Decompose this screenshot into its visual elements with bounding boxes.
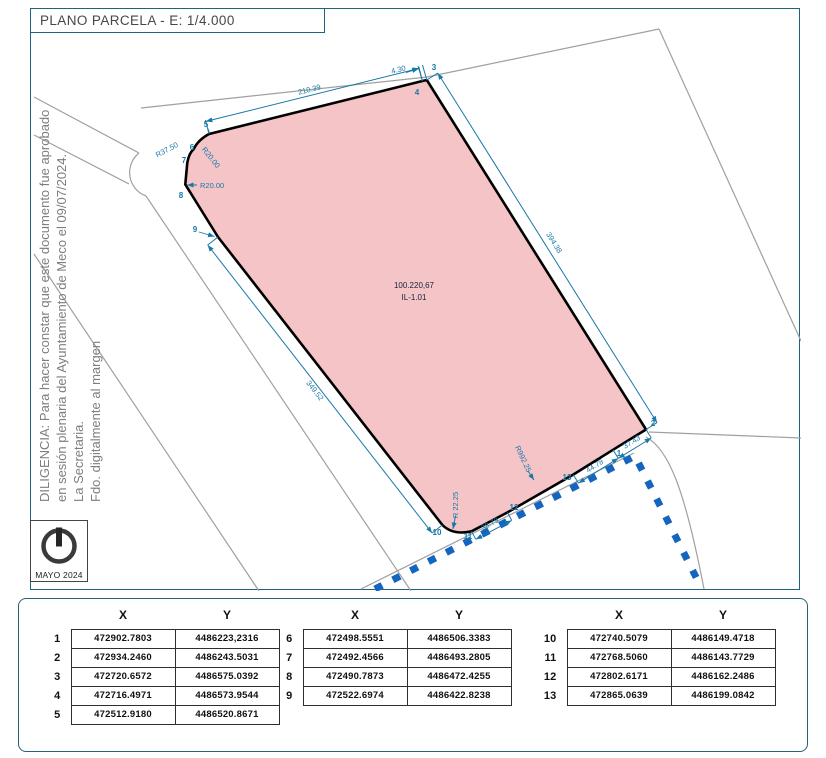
coord-x: 472720.6572 <box>71 667 175 686</box>
coord-x: 472498.5551 <box>303 629 407 648</box>
point-number: 2 <box>41 648 71 667</box>
point-number: 7 <box>273 648 303 667</box>
point-number: 6 <box>273 629 303 648</box>
dim-top-corner: 4.30 <box>390 63 406 75</box>
coord-y: 4486149.4718 <box>671 629 775 648</box>
radius-corner-label: R 22.25 <box>451 492 460 518</box>
vertex-9: 9 <box>193 225 198 234</box>
coord-row: 9472522.69744486422.8238 <box>273 686 511 705</box>
coord-y: 4486162.2486 <box>671 667 775 686</box>
area-value: 100.220,67 <box>394 281 435 290</box>
coordinates-table-3: X Y 10472740.50794486149.4718 11472768.5… <box>537 607 776 706</box>
coord-y: 4486493.2805 <box>407 648 511 667</box>
culdesac-arc <box>130 153 146 196</box>
coord-y: 4486520.8671 <box>175 705 279 724</box>
coord-y: 4486422.8238 <box>407 686 511 705</box>
vertex-7: 7 <box>182 156 187 165</box>
coord-row: 1472902.78034486223,2316 <box>41 629 279 648</box>
dim-top: 210.39 <box>297 82 321 96</box>
plan-sheet: 210.39 4.30 394.38 349.52 44.78 37.43 38… <box>0 0 826 758</box>
col-header-x: X <box>303 607 407 629</box>
col-header-y: Y <box>671 607 775 629</box>
coord-x: 472934.2460 <box>71 648 175 667</box>
coord-y: 4486472.4255 <box>407 667 511 686</box>
coord-x: 472768.5060 <box>567 648 671 667</box>
vertex-3: 3 <box>432 63 437 72</box>
coord-y: 4486243.5031 <box>175 648 279 667</box>
dim-left: 349.52 <box>304 379 325 403</box>
diligencia-line-1: DILIGENCIA: Para hacer constar que este … <box>36 110 53 502</box>
coord-y: 4486143.7729 <box>671 648 775 667</box>
title-box: PLANO PARCELA - E: 1/4.000 <box>30 8 325 33</box>
point-number: 11 <box>537 648 567 667</box>
point-number: 1 <box>41 629 71 648</box>
radius-37-label: R37.50 <box>154 140 180 159</box>
vertex-5: 5 <box>204 120 209 129</box>
plan-date: MAYO 2024 <box>31 570 87 580</box>
coord-y: 4486199.0842 <box>671 686 775 705</box>
coord-row: 6472498.55514486506.3383 <box>273 629 511 648</box>
parcel-polygon <box>185 80 646 533</box>
point-number: 5 <box>41 705 71 724</box>
coordinates-table-2: X Y 6472498.55514486506.3383 7472492.456… <box>273 607 512 706</box>
dim-right: 394.38 <box>544 231 564 255</box>
coord-y: 4486575.0392 <box>175 667 279 686</box>
point-number: 12 <box>537 667 567 686</box>
coord-y: 4486506.3383 <box>407 629 511 648</box>
diligencia-line-2: en sesión plenaria del Ayuntamiento de M… <box>53 110 70 502</box>
coordinates-table-1: X Y 1472902.78034486223,2316 2472934.246… <box>41 607 280 725</box>
coord-y: 4486573.9544 <box>175 686 279 705</box>
table-header: X Y <box>273 607 511 629</box>
table-header: X Y <box>537 607 775 629</box>
col-header-x: X <box>567 607 671 629</box>
radius-20b-label: R20.00 <box>200 181 224 190</box>
coord-row: 7472492.45664486493.2805 <box>273 648 511 667</box>
coord-row: 8472490.78734486472.4255 <box>273 667 511 686</box>
coord-x: 472802.6171 <box>567 667 671 686</box>
coord-row: 5472512.91804486520.8671 <box>41 705 279 724</box>
vertex-11: 11 <box>464 532 473 541</box>
point-number: 13 <box>537 686 567 705</box>
vertex-1: 1 <box>617 449 622 458</box>
vertex-13: 13 <box>563 473 572 482</box>
diligencia-note: DILIGENCIA: Para hacer constar que este … <box>36 110 104 502</box>
drawing-frame: 210.39 4.30 394.38 349.52 44.78 37.43 38… <box>30 8 800 590</box>
table-header: X Y <box>41 607 279 629</box>
point-number: 3 <box>41 667 71 686</box>
area-code: IL-1.01 <box>402 293 427 302</box>
coord-x: 472492.4566 <box>303 648 407 667</box>
road-curve-se <box>646 437 704 589</box>
coord-x: 472716.4971 <box>71 686 175 705</box>
coord-y: 4486223,2316 <box>175 629 279 648</box>
coord-row: 12472802.61714486162.2486 <box>537 667 775 686</box>
point-number: 8 <box>273 667 303 686</box>
road-line-east <box>649 432 801 438</box>
coord-row: 2472934.24604486243.5031 <box>41 648 279 667</box>
road-line-ne <box>659 29 801 341</box>
vertex-4: 4 <box>415 88 420 97</box>
parcel-map: 210.39 4.30 394.38 349.52 44.78 37.43 38… <box>31 9 801 591</box>
diligencia-line-4: Fdo. digitalmente al margen <box>87 110 104 502</box>
coord-row: 11472768.50604486143.7729 <box>537 648 775 667</box>
vertex-8: 8 <box>179 191 184 200</box>
coord-x: 472522.6974 <box>303 686 407 705</box>
diligencia-line-3: La Secretaria. <box>70 110 87 502</box>
point-number: 10 <box>537 629 567 648</box>
vertex-10: 10 <box>433 528 442 537</box>
sheet-title: PLANO PARCELA - E: 1/4.000 <box>40 13 235 28</box>
coord-row: 13472865.06394486199.0842 <box>537 686 775 705</box>
vertex-12: 12 <box>510 503 519 512</box>
col-header-x: X <box>71 607 175 629</box>
coord-x: 472902.7803 <box>71 629 175 648</box>
point-number: 9 <box>273 686 303 705</box>
col-header-y: Y <box>175 607 279 629</box>
coord-x: 472865.0639 <box>567 686 671 705</box>
coord-row: 3472720.65724486575.0392 <box>41 667 279 686</box>
coord-x: 472490.7873 <box>303 667 407 686</box>
coord-row: 10472740.50794486149.4718 <box>537 629 775 648</box>
north-arrow-icon <box>31 521 87 565</box>
col-header-y: Y <box>407 607 511 629</box>
north-box: MAYO 2024 <box>30 520 88 582</box>
vertex-2: 2 <box>651 419 656 428</box>
coord-x: 472512.9180 <box>71 705 175 724</box>
coord-x: 472740.5079 <box>567 629 671 648</box>
coordinates-panel: X Y 1472902.78034486223,2316 2472934.246… <box>18 598 808 752</box>
coord-row: 4472716.49714486573.9544 <box>41 686 279 705</box>
vertex-6: 6 <box>190 143 195 152</box>
point-number: 4 <box>41 686 71 705</box>
